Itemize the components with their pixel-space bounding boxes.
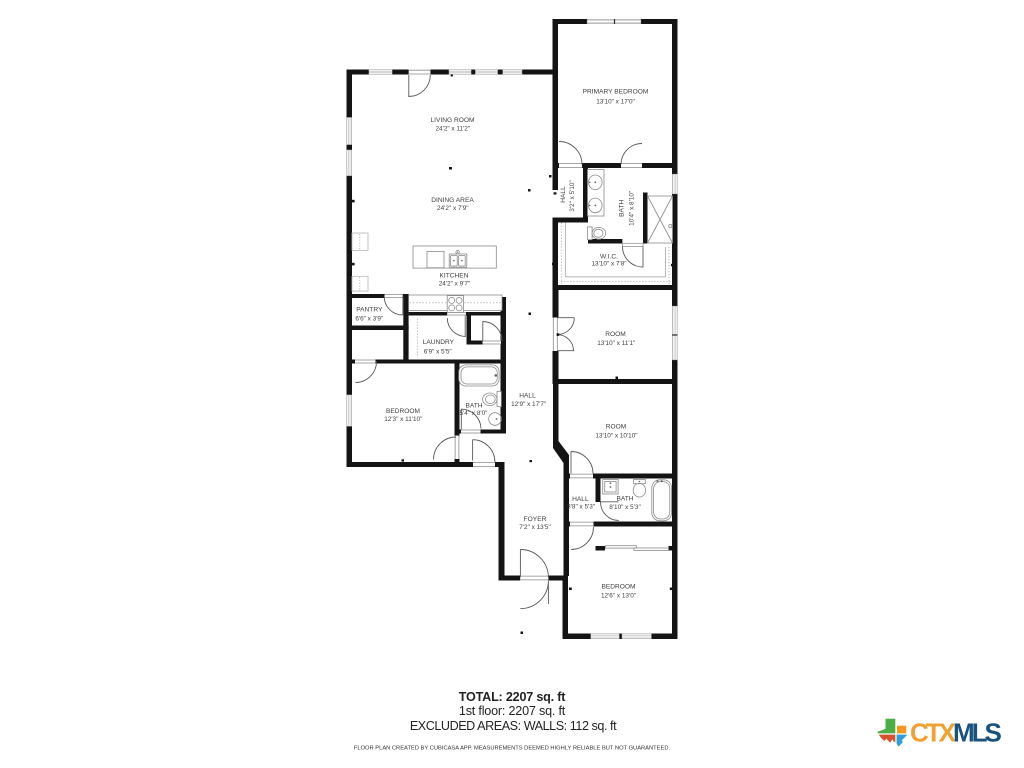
- svg-text:BATH: BATH: [619, 200, 626, 217]
- svg-text:FLOOR PLAN CREATED BY CUBICASA: FLOOR PLAN CREATED BY CUBICASA APP. MEAS…: [354, 745, 671, 751]
- svg-text:BEDROOM: BEDROOM: [601, 583, 635, 590]
- svg-text:BATH: BATH: [616, 495, 633, 502]
- svg-text:12'9" x 17'7": 12'9" x 17'7": [511, 401, 546, 408]
- svg-text:12'3" x 11'10": 12'3" x 11'10": [384, 416, 422, 423]
- svg-text:5'4" x 8'0": 5'4" x 8'0": [460, 410, 488, 417]
- svg-text:3'2" x 5'10": 3'2" x 5'10": [569, 180, 576, 212]
- svg-text:HALL: HALL: [560, 186, 567, 203]
- svg-text:12'6" x 13'0": 12'6" x 13'0": [601, 593, 636, 600]
- svg-text:10'4" x 8'10": 10'4" x 8'10": [628, 191, 635, 226]
- svg-text:ROOM: ROOM: [605, 331, 626, 338]
- svg-text:HALL: HALL: [572, 496, 589, 503]
- svg-text:24'2" x 9'7": 24'2" x 9'7": [439, 280, 471, 287]
- svg-text:13'10" x 10'10": 13'10" x 10'10": [595, 432, 637, 439]
- svg-text:24'2" x 11'2": 24'2" x 11'2": [436, 125, 471, 132]
- svg-text:DINING AREA: DINING AREA: [431, 197, 474, 204]
- svg-text:LIVING ROOM: LIVING ROOM: [431, 117, 475, 124]
- svg-text:TOTAL: 2207 sq. ft: TOTAL: 2207 sq. ft: [459, 690, 567, 704]
- svg-text:7'2" x 13'5": 7'2" x 13'5": [519, 524, 551, 531]
- svg-text:13'10" x 11'1": 13'10" x 11'1": [597, 340, 635, 347]
- svg-text:LAUNDRY: LAUNDRY: [423, 339, 455, 346]
- svg-text:BEDROOM: BEDROOM: [386, 408, 420, 415]
- svg-text:FOYER: FOYER: [524, 516, 547, 523]
- svg-text:W.I.C.: W.I.C.: [600, 253, 618, 260]
- svg-text:1st floor: 2207 sq. ft: 1st floor: 2207 sq. ft: [459, 704, 566, 718]
- svg-text:8'10" x 5'3": 8'10" x 5'3": [609, 504, 641, 511]
- svg-text:ROOM: ROOM: [606, 423, 627, 430]
- svg-text:EXCLUDED AREAS: WALLS: 112 sq.: EXCLUDED AREAS: WALLS: 112 sq. ft: [410, 719, 617, 733]
- svg-text:6'9" x 5'5": 6'9" x 5'5": [424, 349, 452, 356]
- svg-text:KITCHEN: KITCHEN: [440, 273, 469, 280]
- svg-text:13'10" x 17'0": 13'10" x 17'0": [596, 99, 635, 106]
- svg-text:HALL: HALL: [519, 393, 536, 400]
- svg-text:CTXMLS: CTXMLS: [910, 718, 1002, 748]
- svg-text:6'6" x 3'9": 6'6" x 3'9": [355, 315, 383, 322]
- svg-text:3'8" x 5'3": 3'8" x 5'3": [567, 504, 595, 511]
- svg-text:PRIMARY BEDROOM: PRIMARY BEDROOM: [583, 89, 649, 96]
- svg-text:13'10" x 7'8": 13'10" x 7'8": [591, 261, 626, 268]
- svg-text:PANTRY: PANTRY: [356, 307, 383, 314]
- svg-text:BATH: BATH: [465, 402, 482, 409]
- svg-text:24'2" x 7'9": 24'2" x 7'9": [437, 205, 469, 212]
